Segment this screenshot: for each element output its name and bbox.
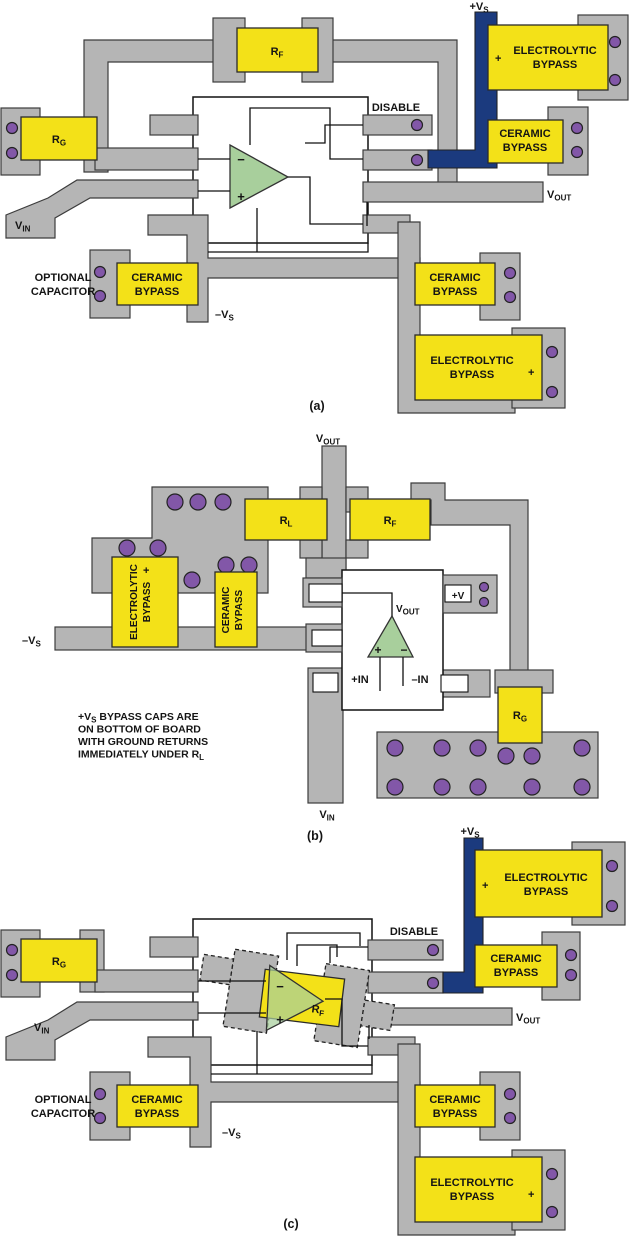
via-pad xyxy=(387,779,403,795)
via-pad xyxy=(7,148,18,159)
via-pad xyxy=(95,267,106,278)
via-pad xyxy=(574,779,590,795)
svg-text:–VS: –VS xyxy=(222,1127,241,1141)
svg-text:ON BOTTOM OF BOARD: ON BOTTOM OF BOARD xyxy=(78,724,201,736)
svg-text:CERAMIC: CERAMIC xyxy=(429,272,480,284)
svg-text:BYPASS: BYPASS xyxy=(494,967,538,979)
ground-plane-bottom xyxy=(377,732,598,798)
svg-text:+V: +V xyxy=(452,591,465,602)
svg-text:ELECTROLYTIC: ELECTROLYTIC xyxy=(430,355,513,367)
svg-text:+: + xyxy=(374,643,381,657)
svg-text:CERAMIC: CERAMIC xyxy=(131,272,182,284)
via-pad xyxy=(412,120,423,131)
pin-slot-pos-in xyxy=(313,673,338,692)
caption-b: (b) xyxy=(307,829,323,843)
via-pad xyxy=(505,1113,516,1124)
ceramic-bypass-cap xyxy=(117,263,198,305)
trace-vout xyxy=(363,182,543,202)
trace-neg-supply-rail xyxy=(55,627,312,650)
via-pad xyxy=(428,945,439,956)
via-pad xyxy=(572,123,583,134)
via-pad xyxy=(434,779,450,795)
svg-text:VIN: VIN xyxy=(319,809,335,823)
trace-stub xyxy=(346,540,368,558)
svg-text:+: + xyxy=(237,189,245,204)
svg-text:+VS: +VS xyxy=(460,826,480,840)
svg-text:DISABLE: DISABLE xyxy=(390,926,438,938)
svg-text:OPTIONAL: OPTIONAL xyxy=(35,1094,92,1106)
via-pad xyxy=(167,494,183,510)
svg-text:BYPASS: BYPASS xyxy=(533,59,577,71)
via-pad xyxy=(480,598,489,607)
svg-text:WITH GROUND RETURNS: WITH GROUND RETURNS xyxy=(78,736,208,748)
pcb-layout-figure: RF RG + ELECTROLYTIC BYPASS CERAMIC BYPA… xyxy=(0,0,634,1240)
svg-text:CERAMIC: CERAMIC xyxy=(131,1094,182,1106)
svg-text:−: − xyxy=(276,979,284,994)
footprint-lead xyxy=(200,954,234,984)
svg-text:ELECTROLYTIC: ELECTROLYTIC xyxy=(129,564,140,640)
via-pad xyxy=(434,740,450,756)
via-pad xyxy=(498,748,514,764)
svg-text:+: + xyxy=(143,565,149,577)
via-pad xyxy=(428,978,439,989)
svg-text:BYPASS: BYPASS xyxy=(433,286,477,298)
pin-slot-output xyxy=(309,584,342,602)
svg-text:ELECTROLYTIC: ELECTROLYTIC xyxy=(513,45,596,57)
ceramic-bypass-cap xyxy=(415,263,495,305)
ceramic-bypass-cap xyxy=(415,1085,495,1127)
via-pad xyxy=(566,950,577,961)
svg-text:CERAMIC: CERAMIC xyxy=(221,587,232,634)
caption-a: (a) xyxy=(309,399,324,413)
via-pad xyxy=(119,540,135,556)
svg-text:+: + xyxy=(276,1012,284,1027)
via-pad xyxy=(470,779,486,795)
panel-a: RF RG + ELECTROLYTIC BYPASS CERAMIC BYPA… xyxy=(1,1,628,413)
svg-text:–VS: –VS xyxy=(215,309,234,323)
svg-text:BYPASS: BYPASS xyxy=(450,369,494,381)
via-pad xyxy=(547,1169,558,1180)
svg-text:+IN: +IN xyxy=(351,674,368,686)
figure-canvas: RF RG + ELECTROLYTIC BYPASS CERAMIC BYPA… xyxy=(0,0,634,1240)
via-pad xyxy=(610,37,621,48)
trace-vout-step xyxy=(306,558,346,578)
svg-text:BYPASS: BYPASS xyxy=(524,886,568,898)
caption-c: (c) xyxy=(283,1217,298,1231)
svg-text:+VS: +VS xyxy=(469,1,489,15)
via-pad xyxy=(572,147,583,158)
via-pad xyxy=(574,740,590,756)
svg-text:+: + xyxy=(528,367,534,379)
svg-text:CERAMIC: CERAMIC xyxy=(429,1094,480,1106)
svg-text:ELECTROLYTIC: ELECTROLYTIC xyxy=(430,1177,513,1189)
svg-text:CAPACITOR: CAPACITOR xyxy=(31,1108,95,1120)
electrolytic-bypass-cap xyxy=(488,25,608,90)
pin-slot-neg-supply xyxy=(312,630,342,646)
svg-text:CERAMIC: CERAMIC xyxy=(490,953,541,965)
via-pad xyxy=(190,494,206,510)
via-pad xyxy=(480,583,489,592)
svg-text:VOUT: VOUT xyxy=(547,189,571,203)
svg-text:VOUT: VOUT xyxy=(316,433,340,447)
electrolytic-bypass-cap xyxy=(415,335,542,400)
via-pad xyxy=(607,901,618,912)
trace-rg-to-ic xyxy=(95,148,198,170)
via-pad xyxy=(7,123,18,134)
via-pad xyxy=(218,557,234,573)
via-pad xyxy=(524,779,540,795)
via-pad xyxy=(505,292,516,303)
svg-text:OPTIONAL: OPTIONAL xyxy=(35,272,92,284)
via-pad xyxy=(610,75,621,86)
via-pad xyxy=(547,347,558,358)
via-pad xyxy=(387,740,403,756)
via-pad xyxy=(505,1089,516,1100)
via-pad xyxy=(241,557,257,573)
ceramic-bypass-cap xyxy=(475,945,557,987)
trace-rg-to-ic xyxy=(95,970,198,992)
via-pad xyxy=(95,1089,106,1100)
via-pad xyxy=(566,970,577,981)
svg-text:–VS: –VS xyxy=(22,635,41,649)
svg-text:BYPASS: BYPASS xyxy=(142,581,153,622)
note-text: +VS BYPASS CAPS ARE ON BOTTOM OF BOARD W… xyxy=(78,711,208,762)
svg-text:+: + xyxy=(528,1189,534,1201)
via-pad xyxy=(470,740,486,756)
via-pad xyxy=(7,945,18,956)
svg-text:BYPASS: BYPASS xyxy=(450,1191,494,1203)
trace-ic-pin-pad xyxy=(150,115,198,135)
via-pad xyxy=(184,572,200,588)
svg-text:DISABLE: DISABLE xyxy=(372,102,420,114)
via-pad xyxy=(215,494,231,510)
svg-text:IMMEDIATELY UNDER RL: IMMEDIATELY UNDER RL xyxy=(78,749,204,763)
via-pad xyxy=(95,1113,106,1124)
svg-text:–IN: –IN xyxy=(411,674,428,686)
panel-c: RG + ELECTROLYTIC BYPASS CERAMIC BYPASS … xyxy=(1,826,625,1235)
ic-outline xyxy=(193,97,368,243)
via-pad xyxy=(7,970,18,981)
svg-text:ELECTROLYTIC: ELECTROLYTIC xyxy=(504,872,587,884)
panel-b: RL RF ELECTROLYTIC BYPASS + CERAMIC BYPA… xyxy=(22,433,598,843)
via-pad xyxy=(547,387,558,398)
via-pad xyxy=(547,1207,558,1218)
via-pad xyxy=(150,540,166,556)
svg-text:−: − xyxy=(400,643,407,657)
svg-text:BYPASS: BYPASS xyxy=(433,1108,477,1120)
svg-text:+: + xyxy=(482,880,488,892)
ceramic-bypass-cap xyxy=(117,1085,198,1127)
svg-text:CAPACITOR: CAPACITOR xyxy=(31,286,95,298)
trace-ic-pin-pad xyxy=(150,937,198,957)
footprint-lead xyxy=(361,1000,395,1030)
pin-slot-neg-in xyxy=(441,675,468,692)
svg-text:BYPASS: BYPASS xyxy=(503,142,547,154)
electrolytic-bypass-cap xyxy=(415,1157,542,1222)
via-pad xyxy=(412,155,423,166)
svg-text:+VS BYPASS CAPS ARE: +VS BYPASS CAPS ARE xyxy=(78,711,199,725)
via-pad xyxy=(524,748,540,764)
svg-text:+: + xyxy=(495,53,501,65)
svg-text:BYPASS: BYPASS xyxy=(135,286,179,298)
svg-text:VOUT: VOUT xyxy=(516,1012,540,1026)
svg-text:−: − xyxy=(237,152,245,167)
svg-text:BYPASS: BYPASS xyxy=(135,1108,179,1120)
via-pad xyxy=(505,268,516,279)
trace-stub xyxy=(300,540,322,558)
via-pad xyxy=(607,861,618,872)
via-pad xyxy=(95,291,106,302)
svg-text:BYPASS: BYPASS xyxy=(234,589,245,630)
svg-text:CERAMIC: CERAMIC xyxy=(499,128,550,140)
